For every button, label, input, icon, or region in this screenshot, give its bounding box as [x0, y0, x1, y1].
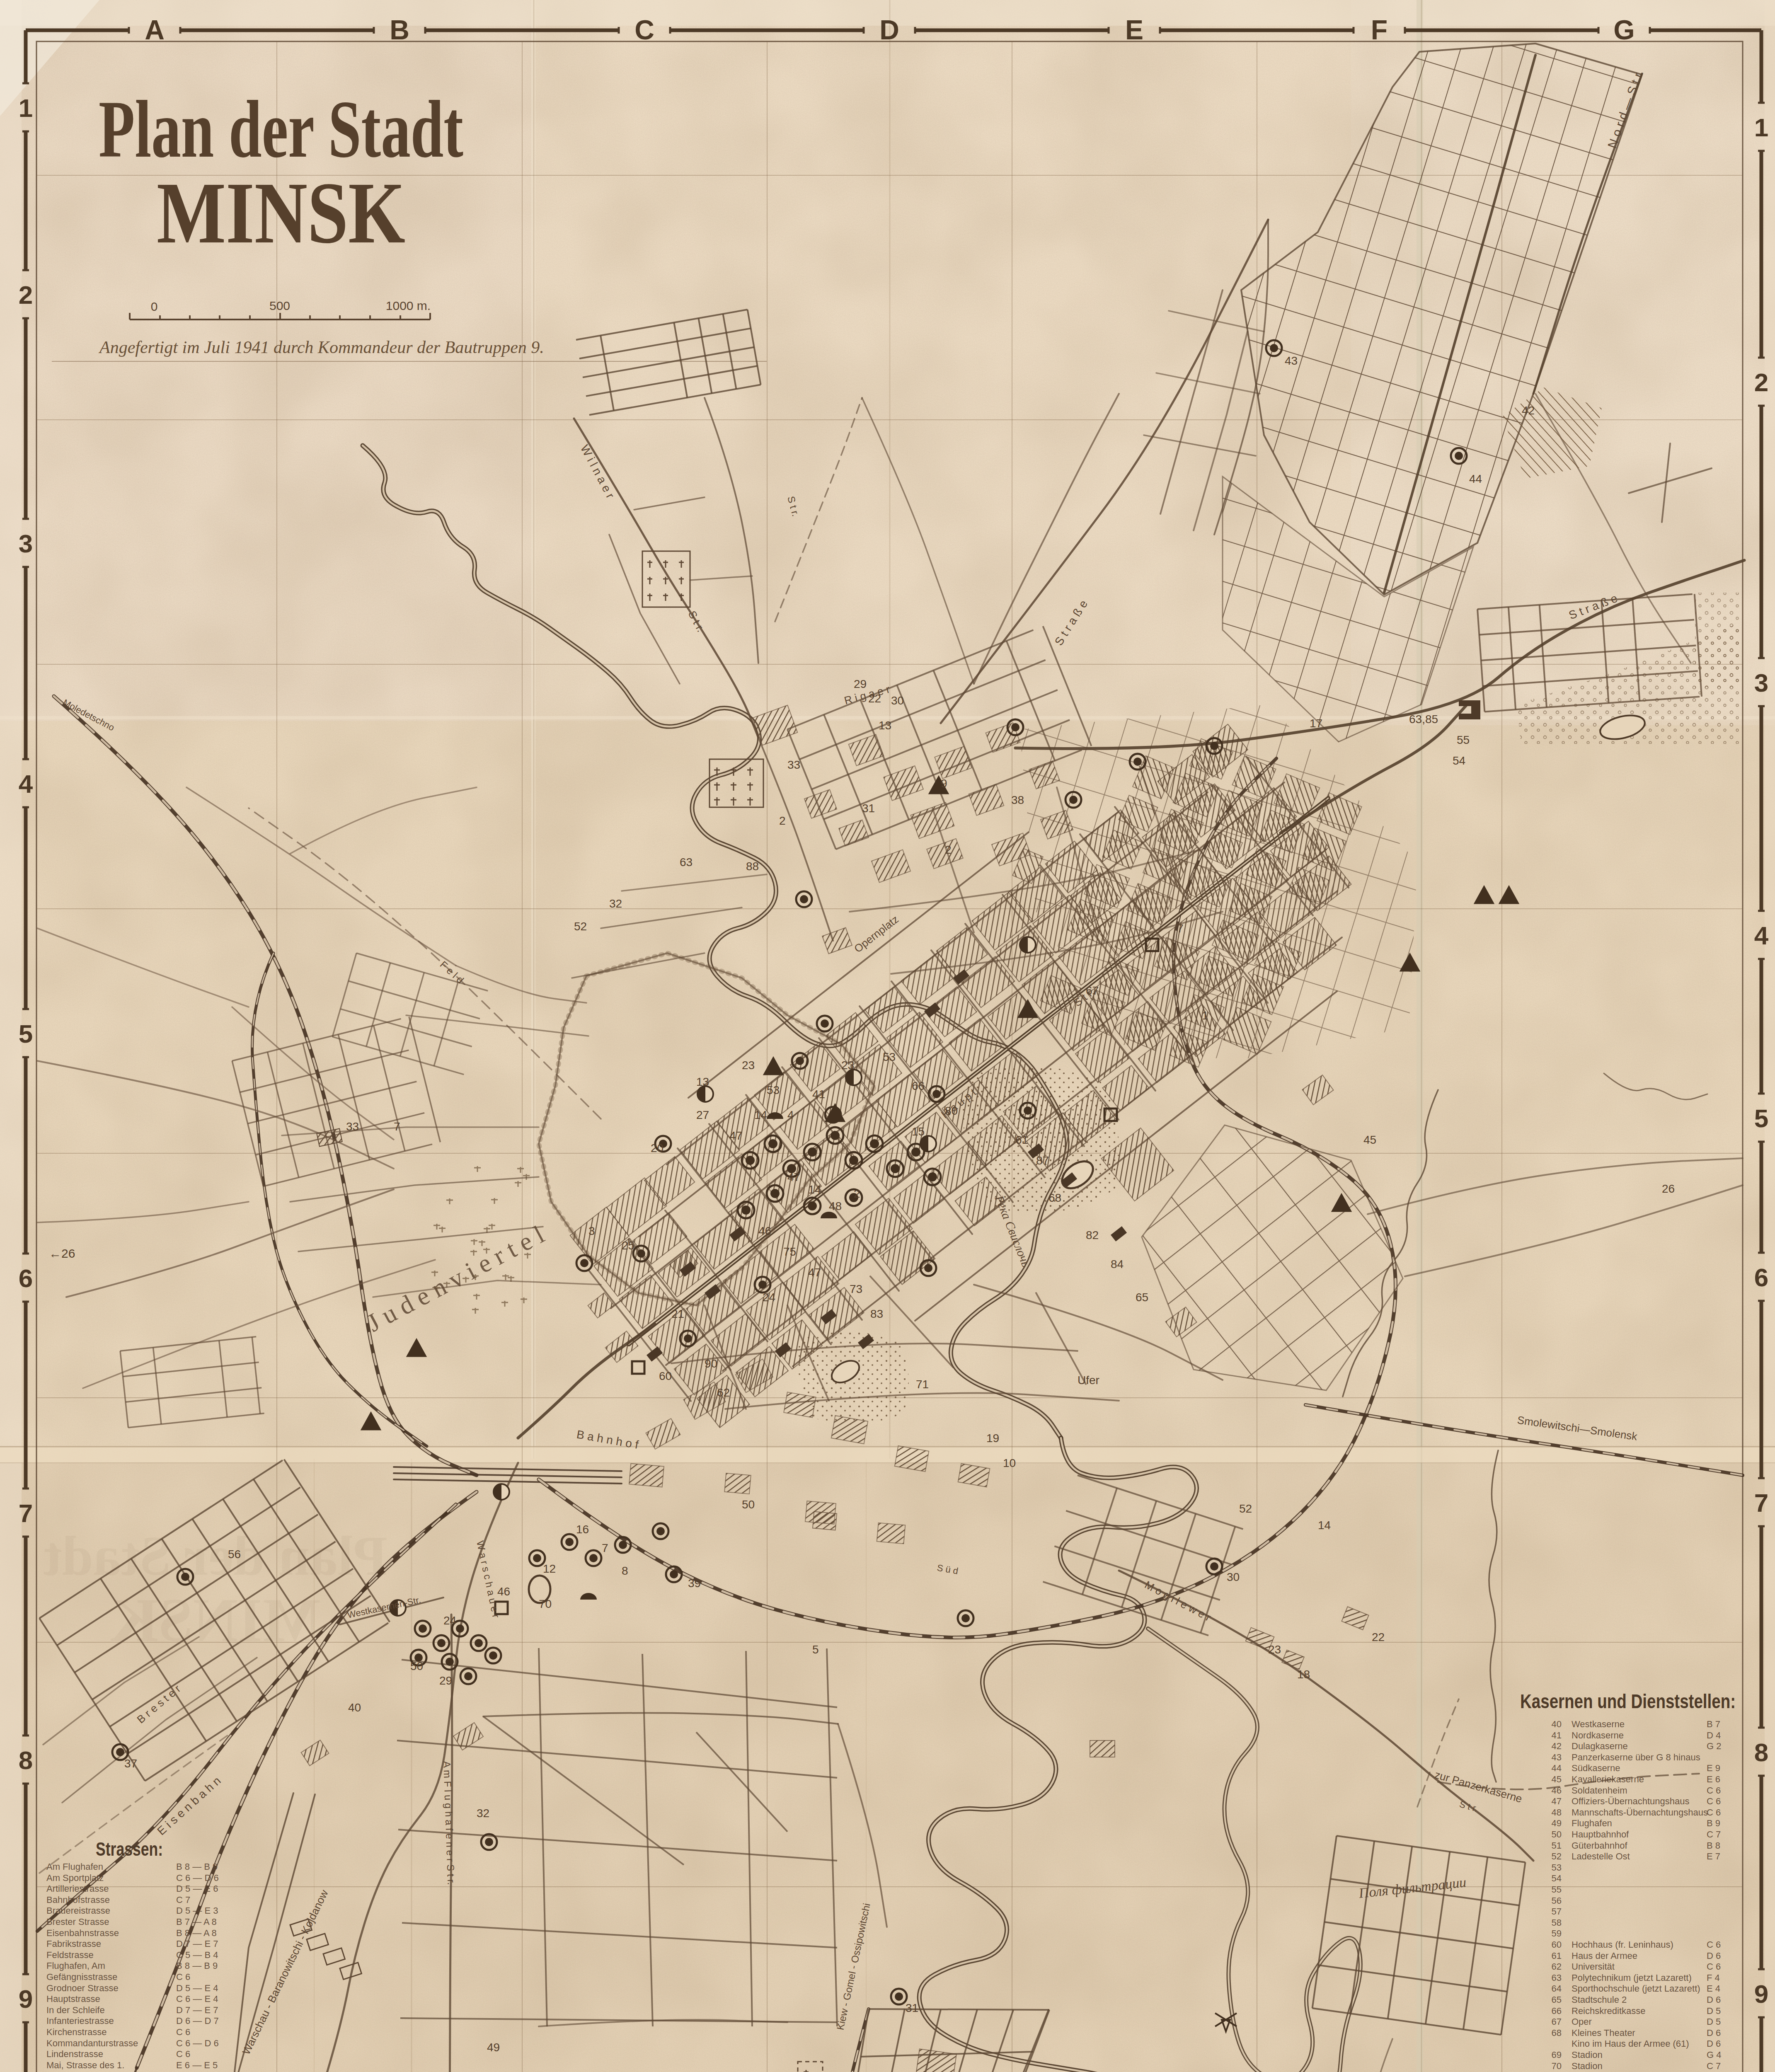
- svg-text:B 8 — B 9: B 8 — B 9: [176, 1861, 218, 1872]
- svg-text:8: 8: [622, 1564, 628, 1577]
- svg-text:3: 3: [588, 1225, 595, 1237]
- svg-text:27: 27: [696, 1109, 709, 1121]
- svg-text:Infanteriestrasse: Infanteriestrasse: [46, 2016, 114, 2026]
- svg-text:C 5 — B 4: C 5 — B 4: [176, 1950, 218, 1960]
- svg-text:25: 25: [622, 1239, 634, 1252]
- svg-text:Eisenbahnstrasse: Eisenbahnstrasse: [46, 1928, 119, 1938]
- svg-text:Grodnoer Strasse: Grodnoer Strasse: [46, 1983, 119, 1993]
- svg-text:C 6 — D 6: C 6 — D 6: [176, 1873, 219, 1883]
- svg-text:Brauereistrasse: Brauereistrasse: [46, 1905, 110, 1916]
- svg-text:Güterbahnhof: Güterbahnhof: [1572, 1840, 1627, 1851]
- svg-text:62: 62: [1552, 1961, 1562, 1972]
- svg-text:5: 5: [812, 1643, 819, 1656]
- svg-text:D 7 — E 7: D 7 — E 7: [176, 1939, 218, 1949]
- svg-text:84: 84: [1111, 1258, 1124, 1271]
- svg-text:A: A: [145, 15, 165, 45]
- svg-text:Kirchenstrasse: Kirchenstrasse: [46, 2027, 107, 2037]
- svg-text:G: G: [1613, 15, 1635, 45]
- svg-text:Flughafen, Am: Flughafen, Am: [46, 1961, 105, 1971]
- svg-text:46: 46: [497, 1585, 510, 1598]
- svg-text:Mai, Strasse des 1.: Mai, Strasse des 1.: [46, 2060, 124, 2070]
- svg-text:C 6 — D 6: C 6 — D 6: [176, 2038, 219, 2048]
- svg-text:Polytechnikum (jetzt Lazarett): Polytechnikum (jetzt Lazarett): [1572, 1973, 1692, 1983]
- svg-text:52: 52: [574, 920, 587, 933]
- svg-text:E 6: E 6: [1707, 1774, 1720, 1784]
- svg-text:57: 57: [1552, 1906, 1562, 1917]
- svg-text:80: 80: [945, 1104, 958, 1117]
- svg-text:23: 23: [841, 1059, 854, 1072]
- svg-text:37: 37: [124, 1757, 137, 1770]
- svg-text:Universität: Universität: [1572, 1961, 1615, 1972]
- svg-text:6: 6: [1754, 1263, 1768, 1292]
- svg-text:19: 19: [986, 1432, 999, 1445]
- svg-text:D 5: D 5: [1707, 2006, 1721, 2016]
- svg-text:63: 63: [1552, 1973, 1562, 1983]
- svg-text:Stadion: Stadion: [1572, 2050, 1603, 2060]
- svg-text:32: 32: [609, 897, 622, 910]
- svg-text:D 5 — E 6: D 5 — E 6: [176, 1883, 218, 1894]
- svg-text:Dulagkaserne: Dulagkaserne: [1572, 1741, 1628, 1751]
- svg-text:C 6: C 6: [1707, 1939, 1721, 1950]
- svg-text:2: 2: [1754, 368, 1768, 397]
- svg-text:E 6 — E 5: E 6 — E 5: [176, 2060, 218, 2070]
- svg-text:24: 24: [443, 1614, 456, 1627]
- svg-text:64: 64: [1552, 1983, 1562, 1994]
- svg-text:Angefertigt im Juli 1941 durch: Angefertigt im Juli 1941 durch Kommandeu…: [98, 338, 544, 357]
- svg-text:Panzerkaserne über G 8 hinaus: Panzerkaserne über G 8 hinaus: [1572, 1752, 1700, 1762]
- svg-text:Sporthochschule (jetzt Lazaret: Sporthochschule (jetzt Lazarett): [1572, 1983, 1700, 1994]
- svg-text:4: 4: [787, 1109, 794, 1121]
- svg-text:52: 52: [1239, 1502, 1252, 1515]
- svg-text:12: 12: [543, 1562, 556, 1575]
- svg-text:Hauptstrasse: Hauptstrasse: [46, 1994, 100, 2004]
- svg-text:46: 46: [1552, 1785, 1562, 1796]
- svg-text:Reichskreditkasse: Reichskreditkasse: [1572, 2006, 1646, 2016]
- svg-text:46: 46: [758, 1225, 771, 1237]
- svg-text:83: 83: [870, 1307, 883, 1320]
- svg-text:1: 1: [19, 94, 33, 122]
- svg-text:21: 21: [671, 1307, 684, 1320]
- svg-text:7: 7: [602, 1542, 608, 1554]
- svg-text:9: 9: [1754, 1980, 1768, 2008]
- svg-text:4: 4: [19, 770, 33, 798]
- svg-text:C 6: C 6: [1707, 1807, 1721, 1818]
- svg-text:Ladestelle Ost: Ladestelle Ost: [1572, 1851, 1630, 1861]
- svg-text:68: 68: [1552, 2028, 1562, 2038]
- svg-text:8: 8: [19, 1746, 33, 1774]
- svg-text:5: 5: [19, 1019, 33, 1048]
- svg-text:Am Flughafen: Am Flughafen: [46, 1861, 103, 1872]
- svg-text:9: 9: [941, 777, 947, 790]
- svg-text:Hauptbahnhof: Hauptbahnhof: [1572, 1829, 1629, 1840]
- svg-text:52: 52: [1552, 1851, 1562, 1861]
- svg-text:56: 56: [228, 1548, 241, 1561]
- svg-text:53: 53: [767, 1084, 780, 1097]
- svg-text:C 6: C 6: [1707, 1785, 1721, 1796]
- svg-text:Haus der Armee: Haus der Armee: [1572, 1951, 1637, 1961]
- svg-text:88: 88: [746, 860, 759, 873]
- svg-text:D 6: D 6: [1707, 2028, 1721, 2038]
- svg-text:MINSK: MINSK: [157, 164, 405, 261]
- svg-text:42: 42: [1552, 1741, 1562, 1751]
- svg-text:48: 48: [1552, 1807, 1562, 1818]
- svg-text:41: 41: [1552, 1730, 1562, 1740]
- svg-text:68: 68: [1049, 1191, 1061, 1204]
- svg-text:33: 33: [346, 1120, 359, 1133]
- svg-text:33: 33: [787, 758, 800, 771]
- svg-text:Oper: Oper: [1572, 2016, 1592, 2027]
- svg-text:14: 14: [1318, 1519, 1331, 1532]
- svg-text:Kleines Theater: Kleines Theater: [1572, 2028, 1635, 2038]
- svg-text:2: 2: [779, 814, 786, 827]
- svg-text:50: 50: [1552, 1829, 1562, 1840]
- svg-text:5: 5: [1754, 1104, 1768, 1133]
- svg-text:51: 51: [1552, 1840, 1562, 1851]
- svg-text:62: 62: [717, 1386, 730, 1399]
- svg-text:26: 26: [1662, 1182, 1675, 1195]
- svg-text:G 2: G 2: [1707, 1741, 1721, 1751]
- svg-text:1000 m.: 1000 m.: [386, 299, 431, 312]
- svg-text:B 9: B 9: [1707, 1818, 1720, 1828]
- svg-text:47: 47: [808, 1266, 821, 1279]
- svg-text:D 5 — E 3: D 5 — E 3: [176, 1905, 218, 1916]
- svg-text:87: 87: [1036, 1154, 1049, 1167]
- svg-text:58: 58: [1552, 1917, 1562, 1928]
- svg-text:Nordkaserne: Nordkaserne: [1572, 1730, 1624, 1740]
- svg-text:Südkaserne: Südkaserne: [1572, 1763, 1620, 1773]
- svg-text:15: 15: [912, 1125, 925, 1138]
- svg-text:1: 1: [1202, 1009, 1208, 1022]
- svg-text:C 6: C 6: [1707, 1961, 1721, 1972]
- svg-text:Lindenstrasse: Lindenstrasse: [46, 2049, 103, 2059]
- svg-text:13: 13: [696, 1075, 709, 1088]
- svg-text:66: 66: [1552, 2006, 1562, 2016]
- svg-text:82: 82: [1086, 1229, 1099, 1242]
- svg-text:29: 29: [854, 678, 867, 690]
- svg-text:Strassen:: Strassen:: [96, 1838, 163, 1860]
- svg-text:2: 2: [945, 843, 952, 856]
- svg-text:Kino im Haus der Armee (61): Kino im Haus der Armee (61): [1572, 2038, 1689, 2049]
- svg-text:70: 70: [1552, 2061, 1562, 2071]
- svg-text:D: D: [879, 15, 899, 45]
- svg-text:Offiziers-Übernachtungshaus: Offiziers-Übernachtungshaus: [1572, 1796, 1690, 1806]
- svg-text:16: 16: [576, 1523, 589, 1536]
- svg-text:48: 48: [829, 1200, 842, 1213]
- svg-text:47: 47: [1552, 1796, 1562, 1806]
- svg-text:54: 54: [1552, 1873, 1562, 1883]
- svg-text:7: 7: [1754, 1489, 1768, 1517]
- svg-text:F: F: [1371, 15, 1388, 45]
- svg-text:C 6: C 6: [176, 1972, 190, 1982]
- svg-text:30: 30: [891, 694, 904, 707]
- svg-text:E 9: E 9: [1707, 1763, 1720, 1773]
- svg-text:38: 38: [1011, 794, 1024, 806]
- svg-text:39: 39: [688, 1577, 701, 1590]
- svg-text:14: 14: [808, 1183, 821, 1196]
- svg-text:42: 42: [1522, 404, 1535, 417]
- svg-text:C: C: [634, 15, 654, 45]
- svg-text:D 6: D 6: [1707, 1951, 1721, 1961]
- svg-text:55: 55: [1552, 1884, 1562, 1895]
- svg-text:←26: ←26: [49, 1247, 75, 1260]
- svg-text:31: 31: [862, 802, 875, 815]
- svg-text:69: 69: [1552, 2050, 1562, 2060]
- svg-text:C 7: C 7: [1707, 1829, 1721, 1840]
- svg-text:Fabrikstrasse: Fabrikstrasse: [46, 1939, 101, 1949]
- svg-text:44: 44: [1469, 472, 1482, 485]
- svg-text:4: 4: [1754, 921, 1769, 950]
- svg-text:22: 22: [868, 692, 881, 705]
- svg-text:Artilleriestrasse: Artilleriestrasse: [46, 1883, 109, 1894]
- svg-text:Ufer: Ufer: [1078, 1374, 1099, 1387]
- svg-text:17: 17: [1310, 717, 1322, 730]
- svg-text:Kavalleriekaserne: Kavalleriekaserne: [1572, 1774, 1644, 1784]
- svg-text:B 7 — A 8: B 7 — A 8: [176, 1917, 217, 1927]
- svg-text:60: 60: [1552, 1939, 1562, 1950]
- svg-text:56: 56: [1552, 1895, 1562, 1906]
- svg-text:Feldstrasse: Feldstrasse: [46, 1950, 94, 1960]
- svg-text:71: 71: [916, 1378, 929, 1391]
- svg-text:41: 41: [812, 1088, 825, 1101]
- svg-text:67: 67: [1552, 2016, 1562, 2027]
- svg-text:23: 23: [742, 1059, 755, 1072]
- svg-text:70: 70: [539, 1598, 552, 1610]
- svg-text:61: 61: [1015, 1133, 1028, 1146]
- svg-text:7: 7: [1177, 922, 1184, 935]
- svg-text:Stadion: Stadion: [1572, 2061, 1603, 2071]
- svg-text:32: 32: [477, 1807, 489, 1820]
- svg-text:44: 44: [1552, 1763, 1562, 1773]
- svg-text:Bahnhofstrasse: Bahnhofstrasse: [46, 1895, 110, 1905]
- svg-text:Gefängnisstrasse: Gefängnisstrasse: [46, 1972, 117, 1982]
- svg-text:Westkaserne: Westkaserne: [1572, 1719, 1625, 1729]
- svg-text:18: 18: [1297, 1668, 1310, 1681]
- svg-text:B 8 — B 9: B 8 — B 9: [176, 1961, 218, 1971]
- svg-text:D 6: D 6: [1707, 2038, 1721, 2049]
- svg-text:6: 6: [19, 1264, 33, 1293]
- svg-text:B: B: [390, 15, 409, 45]
- svg-text:D 5 — E 4: D 5 — E 4: [176, 1983, 218, 1993]
- svg-text:D 7 — E 7: D 7 — E 7: [176, 2005, 218, 2015]
- svg-text:B 8: B 8: [1707, 1840, 1720, 1851]
- svg-text:65: 65: [1136, 1291, 1148, 1304]
- svg-text:55: 55: [1457, 733, 1470, 746]
- svg-text:43: 43: [1285, 354, 1298, 367]
- svg-text:53: 53: [883, 1051, 896, 1063]
- svg-text:C 7: C 7: [1707, 2061, 1721, 2071]
- svg-text:C 6 — E 4: C 6 — E 4: [176, 1994, 218, 2004]
- svg-text:2: 2: [854, 1187, 860, 1200]
- svg-text:500: 500: [269, 299, 290, 312]
- svg-text:Stadtschule 2: Stadtschule 2: [1572, 1995, 1627, 2005]
- svg-text:D 6 — D 7: D 6 — D 7: [176, 2016, 219, 2026]
- svg-text:47: 47: [787, 1171, 800, 1184]
- svg-text:0: 0: [151, 300, 158, 313]
- svg-text:C 6: C 6: [176, 2027, 190, 2037]
- svg-text:31: 31: [906, 2002, 918, 2014]
- svg-text:Flughafen: Flughafen: [1572, 1818, 1612, 1828]
- svg-text:C 6: C 6: [176, 2049, 190, 2059]
- svg-text:Plan der Stadt: Plan der Stadt: [99, 84, 463, 174]
- svg-text:13: 13: [879, 719, 891, 732]
- svg-text:Mannschafts-Übernachtungshaus: Mannschafts-Übernachtungshaus: [1572, 1807, 1708, 1818]
- svg-text:22: 22: [1372, 1631, 1385, 1644]
- svg-text:49: 49: [487, 2041, 500, 2054]
- svg-text:8: 8: [1754, 1738, 1768, 1767]
- svg-text:D 4: D 4: [1707, 1730, 1721, 1740]
- svg-text:54: 54: [1453, 754, 1465, 767]
- svg-text:40: 40: [348, 1701, 361, 1714]
- svg-text:59: 59: [1552, 1928, 1562, 1939]
- svg-text:Am Sportplatz: Am Sportplatz: [46, 1873, 104, 1883]
- svg-text:E 7: E 7: [1707, 1851, 1720, 1861]
- svg-text:63,85: 63,85: [1409, 713, 1438, 726]
- svg-text:53: 53: [1552, 1862, 1562, 1873]
- svg-text:61: 61: [1552, 1951, 1562, 1961]
- svg-text:In der Schleife: In der Schleife: [46, 2005, 105, 2015]
- svg-text:D 5: D 5: [1707, 2016, 1721, 2027]
- svg-text:60: 60: [659, 1370, 672, 1382]
- svg-text:73: 73: [850, 1283, 862, 1295]
- svg-text:7: 7: [19, 1499, 33, 1527]
- svg-text:2: 2: [19, 281, 33, 309]
- svg-text:90: 90: [705, 1357, 717, 1370]
- svg-text:43: 43: [1552, 1752, 1562, 1762]
- svg-text:Hochhaus (fr. Leninhaus): Hochhaus (fr. Leninhaus): [1572, 1939, 1673, 1950]
- svg-text:B 7: B 7: [1707, 1719, 1720, 1729]
- svg-text:50: 50: [742, 1498, 755, 1511]
- svg-text:50: 50: [410, 1660, 423, 1673]
- svg-text:3: 3: [1754, 668, 1768, 697]
- svg-text:7: 7: [394, 1120, 400, 1133]
- svg-text:B 8 — A 8: B 8 — A 8: [176, 1928, 217, 1938]
- svg-text:E: E: [1125, 15, 1143, 45]
- svg-text:D 6: D 6: [1707, 1995, 1721, 2005]
- svg-text:45: 45: [1363, 1133, 1376, 1146]
- svg-text:G 4: G 4: [1707, 2050, 1721, 2060]
- svg-text:9: 9: [19, 1985, 33, 2013]
- svg-text:Kasernen und Dienststellen:: Kasernen und Dienststellen:: [1520, 1690, 1736, 1712]
- svg-text:1: 1: [1754, 113, 1768, 142]
- svg-text:75: 75: [783, 1245, 796, 1258]
- svg-text:10: 10: [1003, 1457, 1016, 1469]
- svg-text:Soldatenheim: Soldatenheim: [1572, 1785, 1627, 1796]
- svg-text:Brester Strasse: Brester Strasse: [46, 1917, 109, 1927]
- svg-text:24: 24: [763, 1291, 775, 1304]
- svg-text:14: 14: [754, 1109, 767, 1121]
- svg-text:C 7: C 7: [176, 1895, 190, 1905]
- svg-text:29: 29: [439, 1674, 452, 1687]
- svg-text:C 6: C 6: [1707, 1796, 1721, 1806]
- svg-text:30: 30: [1227, 1571, 1240, 1583]
- svg-text:E 4: E 4: [1707, 1983, 1720, 1994]
- svg-text:F 4: F 4: [1707, 1973, 1720, 1983]
- svg-text:47: 47: [729, 1129, 742, 1142]
- svg-text:20: 20: [651, 1142, 664, 1155]
- svg-text:3: 3: [19, 529, 33, 558]
- svg-text:66: 66: [912, 1080, 925, 1092]
- svg-text:67: 67: [1086, 984, 1099, 997]
- svg-text:40: 40: [1552, 1719, 1562, 1729]
- svg-text:49: 49: [1552, 1818, 1562, 1828]
- svg-text:23: 23: [1268, 1643, 1281, 1656]
- svg-text:63: 63: [680, 856, 693, 869]
- svg-text:65: 65: [1552, 1995, 1562, 2005]
- svg-text:45: 45: [1552, 1774, 1562, 1784]
- svg-text:Kommandanturstrasse: Kommandanturstrasse: [46, 2038, 138, 2048]
